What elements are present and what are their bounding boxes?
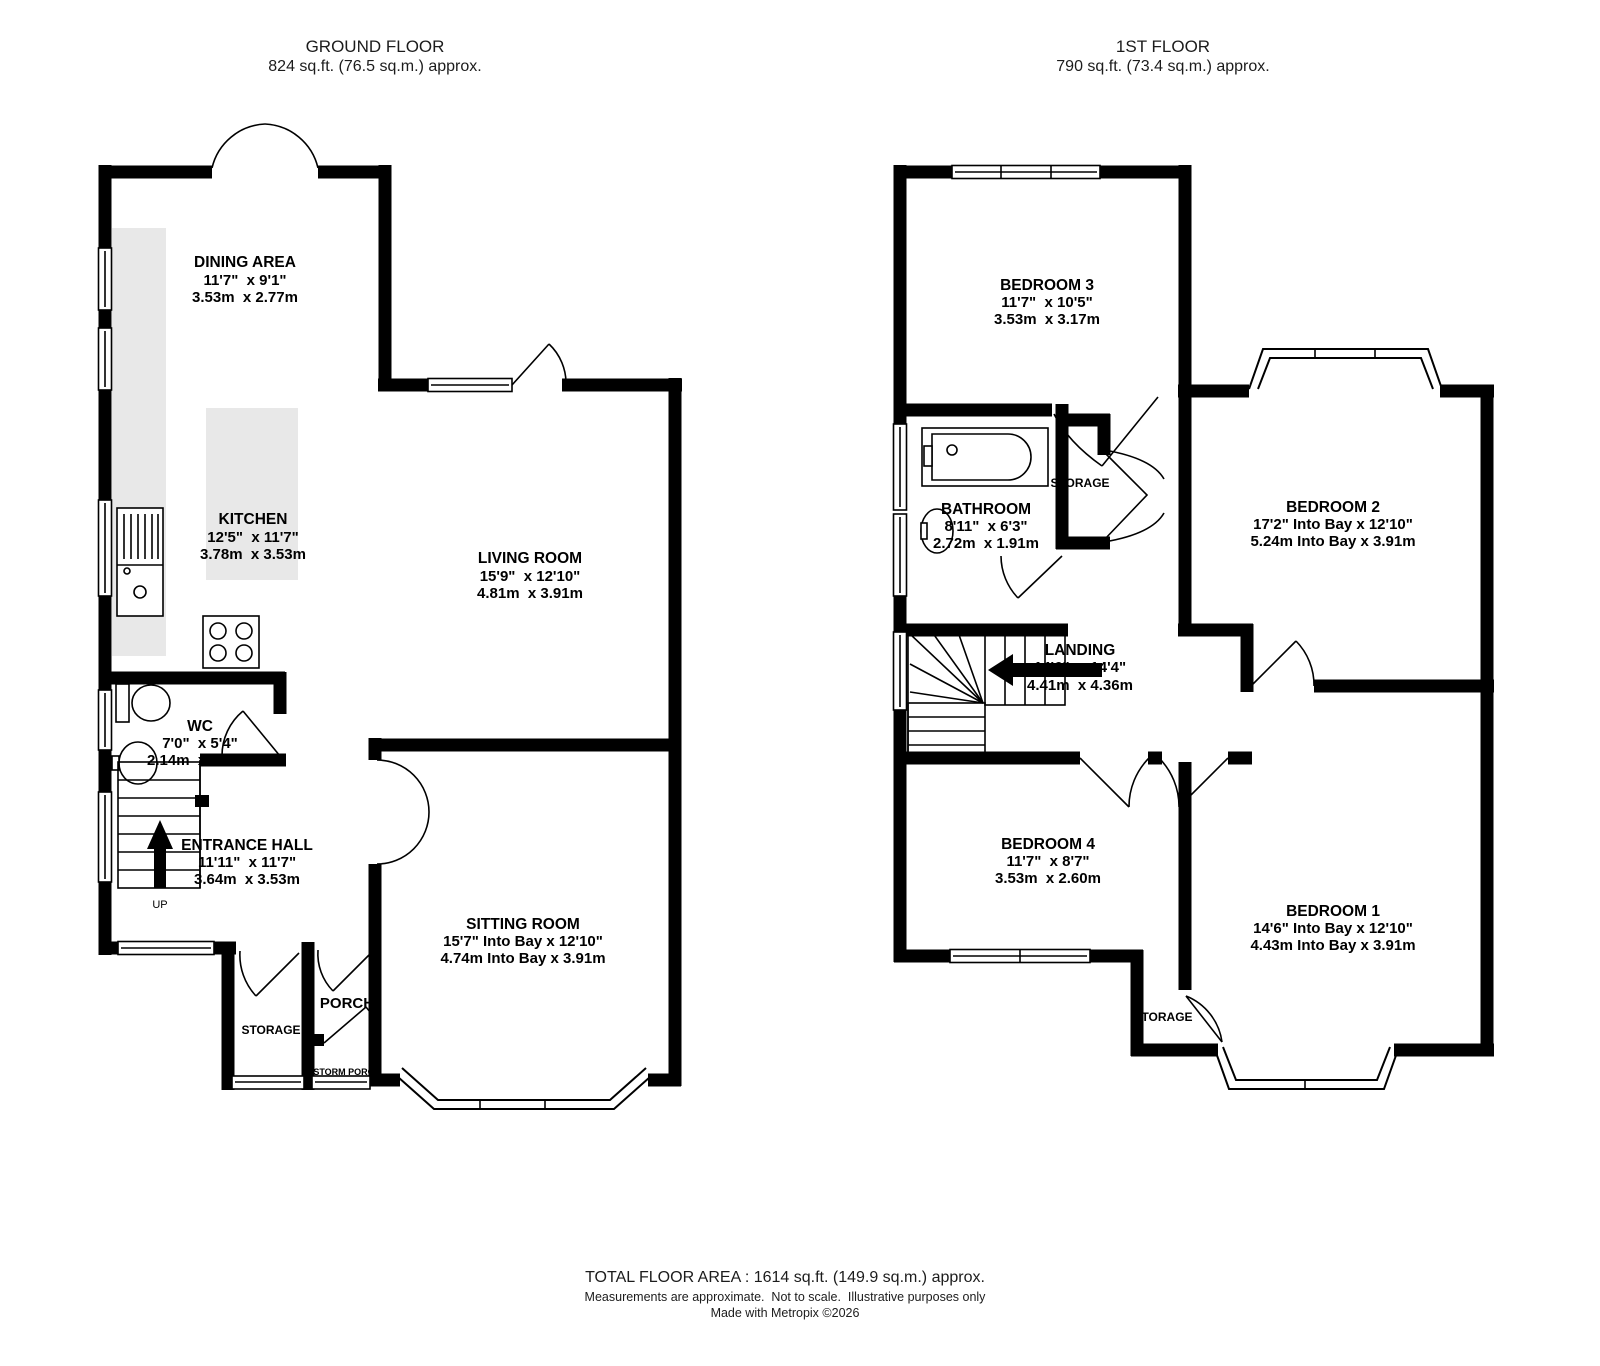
room-dining-name: DINING AREA	[194, 254, 296, 271]
first-stairs	[908, 632, 1065, 758]
room-bathroom-imperial: 8'11" x 6'3"	[944, 518, 1027, 535]
room-bedroom3-imperial: 11'7" x 10'5"	[1001, 294, 1092, 311]
kitchen-sink-icon	[117, 508, 163, 616]
hob-icon	[203, 616, 259, 668]
room-wc-imperial: 7'0" x 5'4"	[162, 735, 238, 752]
room-wc-name: WC	[187, 718, 213, 735]
floorplan-drawing: GROUND FLOOR 824 sq.ft. (76.5 sq.m.) app…	[0, 0, 1600, 1366]
label-storage-ground: STORAGE	[241, 1023, 300, 1037]
room-bedroom4-metric: 3.53m x 2.60m	[995, 870, 1101, 887]
room-bedroom2-metric: 5.24m Into Bay x 3.91m	[1250, 533, 1415, 550]
window	[428, 379, 512, 392]
room-hall-name: ENTRANCE HALL	[181, 837, 313, 854]
window	[118, 942, 214, 955]
first-floor-title: 1ST FLOOR	[1116, 37, 1210, 56]
ground-floor-area: 824 sq.ft. (76.5 sq.m.) approx.	[268, 58, 481, 75]
label-porch: PORCH	[320, 995, 374, 1012]
room-bathroom-name: BATHROOM	[941, 501, 1031, 518]
footer-total-area: TOTAL FLOOR AREA : 1614 sq.ft. (149.9 sq…	[585, 1269, 985, 1286]
room-sitting-name: SITTING ROOM	[466, 916, 580, 933]
window	[894, 424, 907, 510]
room-living-imperial: 15'9" x 12'10"	[480, 568, 581, 585]
room-bedroom2-name: BEDROOM 2	[1286, 499, 1380, 516]
room-dining-imperial: 11'7" x 9'1"	[203, 272, 286, 289]
sitting-bay-window	[398, 1068, 650, 1109]
window	[312, 1076, 370, 1089]
room-hall-imperial: 11'11" x 11'7"	[198, 854, 296, 871]
room-landing-metric: 4.41m x 4.36m	[1027, 677, 1133, 694]
bathtub-icon	[922, 428, 1048, 486]
up-arrow-icon	[147, 820, 173, 888]
first-floor-area: 790 sq.ft. (73.4 sq.m.) approx.	[1056, 58, 1269, 75]
room-sitting-imperial: 15'7" Into Bay x 12'10"	[443, 933, 603, 950]
room-bedroom4-name: BEDROOM 4	[1001, 836, 1095, 853]
room-kitchen-name: KITCHEN	[219, 511, 288, 528]
room-bedroom3-name: BEDROOM 3	[1000, 277, 1094, 294]
room-bedroom2-imperial: 17'2" Into Bay x 12'10"	[1253, 516, 1413, 533]
room-kitchen-metric: 3.78m x 3.53m	[200, 546, 306, 563]
window	[894, 514, 907, 596]
window	[99, 690, 112, 750]
window	[99, 500, 112, 596]
first-fixtures	[908, 349, 1442, 1089]
bedroom1-bay-window	[1214, 1047, 1399, 1089]
window	[232, 1076, 304, 1089]
labels-layer: GROUND FLOOR 824 sq.ft. (76.5 sq.m.) app…	[147, 37, 1416, 1320]
room-bedroom1-metric: 4.43m Into Bay x 3.91m	[1250, 937, 1415, 954]
footer-credit: Made with Metropix ©2026	[711, 1306, 860, 1320]
window	[950, 950, 1090, 963]
window	[952, 166, 1100, 179]
room-landing-name: LANDING	[1045, 642, 1116, 659]
room-dining-metric: 3.53m x 2.77m	[192, 289, 298, 306]
label-up: UP	[152, 899, 167, 911]
room-bedroom4-imperial: 11'7" x 8'7"	[1006, 853, 1089, 870]
window	[99, 248, 112, 310]
window	[99, 328, 112, 390]
room-bedroom3-metric: 3.53m x 3.17m	[994, 311, 1100, 328]
window	[894, 632, 907, 710]
room-bedroom1-name: BEDROOM 1	[1286, 903, 1380, 920]
room-living-metric: 4.81m x 3.91m	[477, 585, 583, 602]
window	[99, 792, 112, 882]
room-bedroom1-imperial: 14'6" Into Bay x 12'10"	[1253, 920, 1413, 937]
room-kitchen-imperial: 12'5" x 11'7"	[207, 529, 298, 546]
floorplan-page: GROUND FLOOR 824 sq.ft. (76.5 sq.m.) app…	[0, 0, 1600, 1366]
room-living-name: LIVING ROOM	[478, 550, 582, 567]
room-hall-metric: 3.64m x 3.53m	[194, 871, 300, 888]
toilet-icon	[116, 684, 170, 722]
bedroom2-bay-window	[1249, 349, 1442, 389]
ground-floor-title: GROUND FLOOR	[306, 37, 445, 56]
footer-disclaimer: Measurements are approximate. Not to sca…	[585, 1290, 987, 1304]
room-bathroom-metric: 2.72m x 1.91m	[933, 535, 1039, 552]
room-sitting-metric: 4.74m Into Bay x 3.91m	[440, 950, 605, 967]
